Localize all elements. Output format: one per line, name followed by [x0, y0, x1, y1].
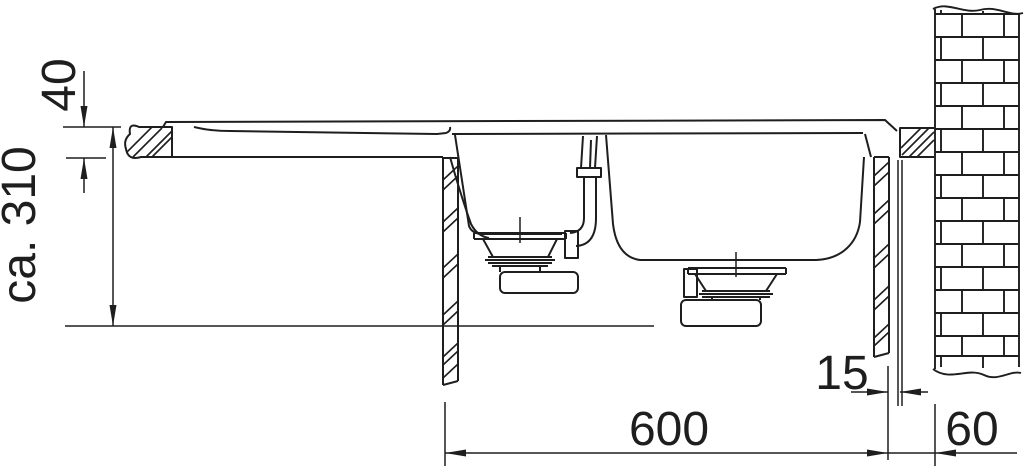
drainboard-surface	[194, 127, 450, 134]
cabinet-side-panel-left	[443, 158, 458, 385]
sink-rim-top	[163, 120, 897, 131]
dimension-cabinet-width	[445, 402, 1017, 466]
countertop-right-hatch	[901, 128, 934, 157]
arrow-right-icon	[867, 389, 888, 396]
brick-joints	[941, 10, 1004, 368]
small-bowl-drain	[474, 217, 578, 293]
label-wall-offset: 60	[945, 403, 998, 456]
label-installation-depth: ca. 310	[0, 146, 46, 303]
arrow-up-icon	[81, 158, 88, 179]
wall-top-break-line	[933, 6, 1023, 13]
sink-rim-underside	[452, 133, 863, 134]
label-rear-gap: 15	[815, 347, 868, 400]
small-drain-trap	[500, 272, 578, 293]
label-countertop-thickness: 40	[33, 58, 86, 111]
countertop-left-hatch	[127, 127, 172, 157]
sink-section-svg: 40 ca. 310 15 600 60	[0, 0, 1024, 466]
large-bowl-wall	[606, 135, 864, 260]
small-bowl-inner-wall	[455, 135, 562, 234]
sink-right-edge	[865, 134, 871, 157]
arrow-right-icon	[867, 450, 888, 457]
rear-rail-lines	[898, 160, 902, 406]
arrow-left-icon	[900, 389, 921, 396]
small-drain-rings	[485, 257, 555, 266]
label-cabinet-width: 600	[629, 403, 709, 456]
arrow-down-icon	[110, 305, 117, 326]
brick-wall	[933, 6, 1023, 377]
countertop-left-section	[125, 126, 172, 158]
wall-bottom-break-line	[933, 369, 1021, 377]
countertop-right-section	[900, 128, 934, 157]
arrow-up-icon	[110, 127, 117, 148]
brick-courses	[935, 14, 1019, 356]
sink-installation-drawing: 40 ca. 310 15 600 60	[0, 0, 1024, 466]
arrow-left-icon	[445, 450, 466, 457]
large-bowl-drain	[681, 252, 786, 326]
overflow-pipe	[565, 136, 601, 258]
cabinet-side-panel-right	[874, 157, 889, 357]
large-drain-trap	[681, 300, 761, 326]
large-drain-flange	[688, 268, 786, 274]
large-drain-rings	[699, 291, 773, 297]
overflow-collar	[577, 168, 601, 177]
